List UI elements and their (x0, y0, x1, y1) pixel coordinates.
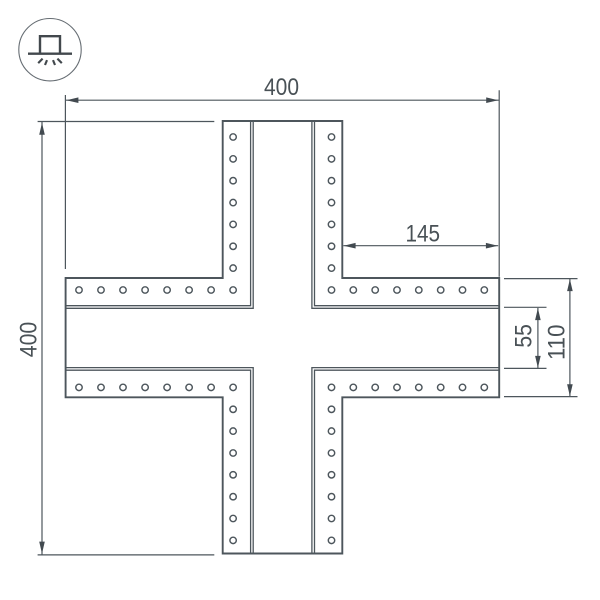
svg-text:110: 110 (543, 325, 570, 361)
svg-text:400: 400 (16, 322, 43, 358)
svg-text:400: 400 (264, 74, 299, 101)
svg-text:55: 55 (511, 324, 538, 348)
svg-text:145: 145 (406, 220, 441, 247)
